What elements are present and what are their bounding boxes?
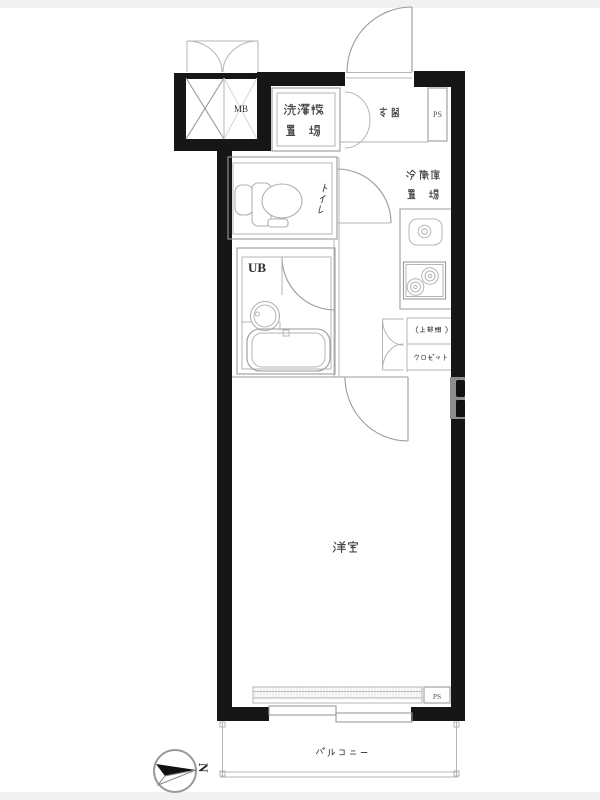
svg-text:MB: MB [234,104,248,114]
svg-text:PS: PS [433,692,441,701]
svg-text:N: N [196,763,211,773]
svg-text:PS: PS [433,110,442,119]
svg-text:UB: UB [248,260,266,275]
